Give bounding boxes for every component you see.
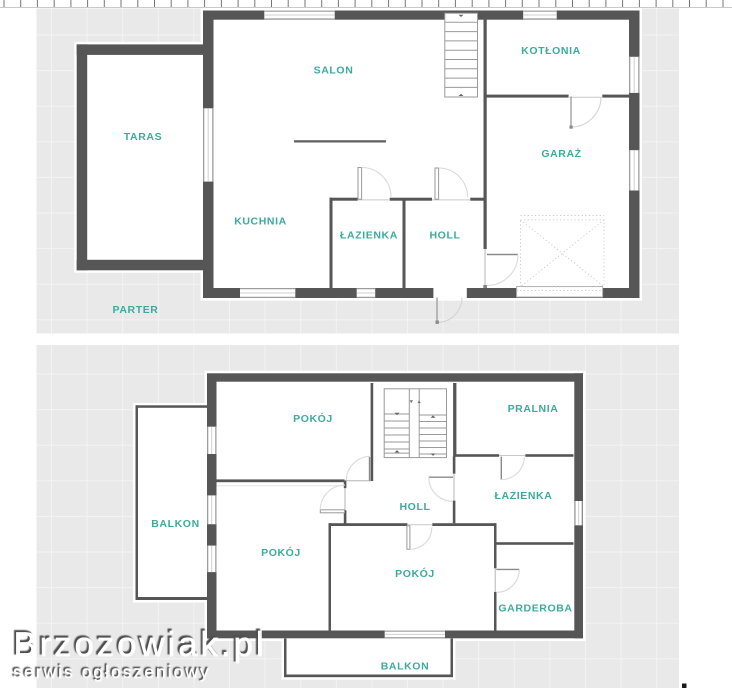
svg-text:PARTER: PARTER: [113, 304, 159, 316]
svg-text:POKÓJ: POKÓJ: [395, 567, 435, 580]
svg-text:Brzozowiak.pl: Brzozowiak.pl: [14, 626, 267, 664]
svg-text:HOLL: HOLL: [400, 501, 431, 513]
svg-text:KOTŁONIA: KOTŁONIA: [521, 45, 581, 57]
svg-text:TARAS: TARAS: [124, 131, 162, 143]
svg-text:POKÓJ: POKÓJ: [261, 546, 301, 559]
svg-text:ŁAZIENKA: ŁAZIENKA: [340, 230, 398, 242]
svg-text:GARDEROBA: GARDEROBA: [498, 603, 572, 615]
svg-text:PRALNIA: PRALNIA: [508, 403, 559, 415]
svg-text:POKÓJ: POKÓJ: [293, 412, 333, 425]
svg-text:ŁAZIENKA: ŁAZIENKA: [495, 490, 553, 502]
svg-text:HOLL: HOLL: [430, 230, 461, 242]
svg-text:BALKON: BALKON: [151, 518, 200, 530]
svg-text:SALON: SALON: [314, 65, 354, 77]
svg-text:GARAŻ: GARAŻ: [541, 147, 581, 160]
svg-text:serwis ogłoszeniowy: serwis ogłoszeniowy: [13, 662, 211, 682]
svg-text:KUCHNIA: KUCHNIA: [234, 216, 287, 228]
svg-text:BALKON: BALKON: [381, 661, 430, 673]
